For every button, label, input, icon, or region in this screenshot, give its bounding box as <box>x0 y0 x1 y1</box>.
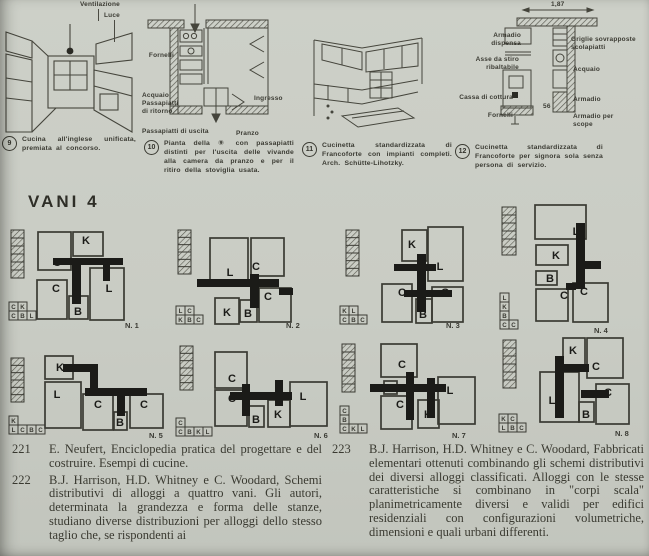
svg-text:B: B <box>351 317 356 324</box>
circulation-bar <box>417 254 426 312</box>
circulation-bar <box>242 384 250 416</box>
label-passapiatti-ritorno: Passapiatti di ritorno <box>142 100 182 115</box>
figure-caption-text: Cucina all'inglese unificata, premiata a… <box>22 136 136 154</box>
svg-text:K: K <box>342 308 347 315</box>
label-passapiatti-uscita: Passapiatti di uscita <box>142 128 210 136</box>
circulation-bar <box>561 364 589 372</box>
bibliography-column-right: 223B.J. Harrison, H.D. Whitney e C. Wood… <box>332 443 644 543</box>
entry-text: E. Neufert, Enciclopedia pratica del pro… <box>49 443 322 471</box>
svg-text:C: C <box>510 416 515 423</box>
svg-text:C: C <box>360 317 365 324</box>
svg-text:C: C <box>196 317 201 324</box>
room-key-strip <box>346 230 359 276</box>
room-key-strip <box>503 340 516 388</box>
room-label: K <box>569 345 577 357</box>
plan-caption: N. 8 <box>615 429 629 438</box>
floor-plan-scheme-6: CCBKLCCBKLN. 6 <box>172 338 332 443</box>
plan-caption: N. 1 <box>125 321 139 330</box>
room-key-strip <box>180 346 193 390</box>
room-label: C <box>264 291 272 303</box>
floor-plan-scheme-3: KLCBCKLCBCN. 3 <box>332 222 492 334</box>
room-L <box>290 382 327 426</box>
room-label: K <box>552 250 560 262</box>
room-label: L <box>300 391 307 403</box>
plan-caption: N. 7 <box>452 431 466 440</box>
svg-text:C: C <box>11 304 16 311</box>
label-ingresso: Ingresso <box>254 95 283 103</box>
room-label: L <box>106 283 113 295</box>
entry-number: 223 <box>332 443 360 540</box>
svg-text:K: K <box>178 317 183 324</box>
floor-plan-scheme-8: KCLCBKCLBCN. 8 <box>495 328 647 440</box>
svg-text:L: L <box>352 308 356 315</box>
room-label: L <box>227 267 234 279</box>
room-key-strip <box>11 230 24 278</box>
circulation-bar <box>576 223 585 289</box>
circulation-bar <box>90 364 98 396</box>
svg-text:K: K <box>196 429 201 436</box>
label-asse-da-stiro: Asse da stiro ribaltabile <box>455 56 519 71</box>
room-label: B <box>252 414 260 426</box>
label-armadio-scope: Armadio per scope <box>573 113 623 128</box>
ceiling-lamp <box>67 48 74 55</box>
entry-number: 222 <box>12 474 40 543</box>
circulation-bar <box>103 265 110 281</box>
svg-text:B: B <box>29 427 34 434</box>
circulation-bar <box>394 264 436 271</box>
circulation-bar <box>250 274 259 308</box>
label-acquaio: Acquaio <box>142 92 180 100</box>
svg-text:C: C <box>342 408 347 415</box>
room-L <box>45 382 81 428</box>
svg-text:K: K <box>20 304 25 311</box>
floor-plan-scheme-7: CBLCKCBCKLN. 7 <box>332 330 497 442</box>
plan-caption: N. 5 <box>149 431 163 440</box>
circulation-bar <box>279 288 293 295</box>
room-label: C <box>94 399 102 411</box>
room-key-strip <box>502 207 516 255</box>
floor-plan-scheme-5: KLCBCKLCBCN. 5 <box>5 338 170 443</box>
circulation-bar <box>406 372 414 420</box>
svg-text:K: K <box>502 304 507 311</box>
label-fornelli: Fornelli <box>142 52 174 60</box>
svg-text:L: L <box>12 427 16 434</box>
room-label: C <box>252 261 260 273</box>
svg-text:B: B <box>342 417 347 424</box>
figure-12-kitchenette-plan: 1,87 <box>455 0 649 190</box>
figure-number-badge: 11 <box>302 142 317 157</box>
figure-caption-text: Cucinetta standardizzata di Francoforte … <box>322 142 452 169</box>
room-label: C <box>140 399 148 411</box>
room-C <box>382 284 412 322</box>
floor-plan-scheme-4: LKBCCLKBCCN. 4 <box>492 195 644 337</box>
bibliography-entry: 221E. Neufert, Enciclopedia pratica del … <box>12 443 322 471</box>
bibliography-entry: 223B.J. Harrison, H.D. Whitney e C. Wood… <box>332 443 644 540</box>
svg-text:C: C <box>178 429 183 436</box>
circulation-bar <box>72 258 81 304</box>
room-label: C <box>398 359 406 371</box>
svg-text:K: K <box>501 416 506 423</box>
room-key-strip <box>342 344 355 392</box>
svg-text:C: C <box>178 420 183 427</box>
room-L <box>428 227 463 281</box>
entry-text: B.J. Harrison, H.D. Whitney e C. Woodard… <box>49 474 322 543</box>
figure-12-caption: 12 Cucinetta standardizzata di Francofor… <box>455 144 603 171</box>
svg-text:B: B <box>187 429 192 436</box>
room-label: B <box>582 409 590 421</box>
svg-text:L: L <box>503 295 507 302</box>
room-label: L <box>54 389 61 401</box>
label-armadio: Armadio <box>573 96 601 104</box>
svg-text:B: B <box>20 313 25 320</box>
room-label: K <box>274 409 282 421</box>
figure-11-caption: 11 Cucinetta standardizzata di Francofor… <box>302 142 452 169</box>
figure-number-badge: 10 <box>144 140 159 155</box>
svg-text:B: B <box>502 313 507 320</box>
svg-text:L: L <box>30 313 34 320</box>
circulation-bar <box>63 364 93 372</box>
svg-text:L: L <box>179 308 183 315</box>
room-label: K <box>82 235 90 247</box>
figure-9-caption: 9 Cucina all'inglese unificata, premiata… <box>2 136 136 154</box>
circulation-bar <box>275 380 283 406</box>
circulation-bar <box>53 258 123 265</box>
room-label: B <box>546 273 554 285</box>
room-label: B <box>244 308 252 320</box>
circulation-bar <box>117 390 125 416</box>
label-ventilazione: Ventilazione <box>80 1 120 9</box>
plan-caption: N. 6 <box>314 431 328 440</box>
label-size-56: 56 <box>543 103 551 111</box>
label-cassa-di-cottura: Cassa di cottura <box>455 94 513 102</box>
svg-text:C: C <box>38 427 43 434</box>
room-label: L <box>447 385 454 397</box>
plan-caption: N. 2 <box>286 321 300 330</box>
label-armadio-dispensa: Armadio dispensa <box>463 32 521 47</box>
svg-text:C: C <box>342 317 347 324</box>
svg-text:C: C <box>519 425 524 432</box>
room-label: L <box>437 261 444 273</box>
figure-caption-text: Cucinetta standardizzata di Francoforte … <box>475 144 603 171</box>
svg-text:C: C <box>20 427 25 434</box>
circulation-bar <box>404 290 452 297</box>
svg-text:C: C <box>11 313 16 320</box>
floor-plan-scheme-1: CKLCBCKCBLN. 1 <box>5 222 170 334</box>
room-label: C <box>560 290 568 302</box>
kitchenette-perspective-drawing <box>308 22 456 136</box>
figure-caption-text: Pianta della ⑨ con passapiatti distinti … <box>164 140 294 176</box>
scanned-book-page: Ventilazione Luce 9 Cucina all <box>0 0 649 556</box>
circulation-bar <box>566 283 576 290</box>
svg-text:C: C <box>187 308 192 315</box>
label-acquaio: Acquaio <box>573 66 600 74</box>
kitchen-perspective-drawing <box>4 16 136 134</box>
entry-text: B.J. Harrison, H.D. Whitney e C. Woodard… <box>369 443 644 540</box>
svg-text:K: K <box>11 418 16 425</box>
svg-text:C: C <box>342 426 347 433</box>
room-label: L <box>549 395 556 407</box>
plan-caption: N. 3 <box>446 321 460 330</box>
room-label: K <box>408 239 416 251</box>
bibliography-column-left: 221E. Neufert, Enciclopedia pratica del … <box>12 443 322 546</box>
svg-text:L: L <box>502 425 506 432</box>
figure-10-caption: 10 Pianta della ⑨ con passapiatti distin… <box>144 140 294 176</box>
room-label: B <box>116 417 124 429</box>
figure-10-kitchen-plan: Fornelli Acquaio Passapiatti di ritorno … <box>142 0 300 190</box>
figure-9-kitchen-perspective: Ventilazione Luce 9 Cucina all <box>2 0 142 190</box>
floor-plan-scheme-2: LCKBCLCKBCN. 2 <box>172 222 332 334</box>
room-label: C <box>228 373 236 385</box>
svg-text:L: L <box>206 429 210 436</box>
room-key-strip <box>178 230 191 274</box>
circulation-bar <box>197 279 279 287</box>
label-pranzo: Pranzo <box>236 130 259 138</box>
figure-number-badge: 9 <box>2 136 17 151</box>
circulation-bar <box>427 378 435 418</box>
figure-11-kitchenette-perspective: 11 Cucinetta standardizzata di Francofor… <box>302 10 458 190</box>
svg-text:L: L <box>361 426 365 433</box>
svg-text:B: B <box>187 317 192 324</box>
room-label: K <box>223 307 231 319</box>
circulation-bar <box>581 390 609 398</box>
room-label: C <box>592 361 600 373</box>
room-label: K <box>56 362 64 374</box>
circulation-bar <box>585 261 601 269</box>
room-label: C <box>52 283 60 295</box>
room-key-strip <box>11 358 24 402</box>
room-label: B <box>74 306 82 318</box>
svg-text:K: K <box>351 426 356 433</box>
section-heading-vani-4: VANI 4 <box>28 192 100 212</box>
label-fornelli: Fornelli <box>469 112 513 120</box>
label-griglie-scolapiatti: Griglie sovrapposte scolapiatti <box>571 36 643 51</box>
bibliography-entry: 222B.J. Harrison, H.D. Whitney e C. Wood… <box>12 474 322 543</box>
svg-text:B: B <box>510 425 515 432</box>
figure-number-badge: 12 <box>455 144 470 159</box>
room-label: C <box>396 399 404 411</box>
entry-number: 221 <box>12 443 40 471</box>
